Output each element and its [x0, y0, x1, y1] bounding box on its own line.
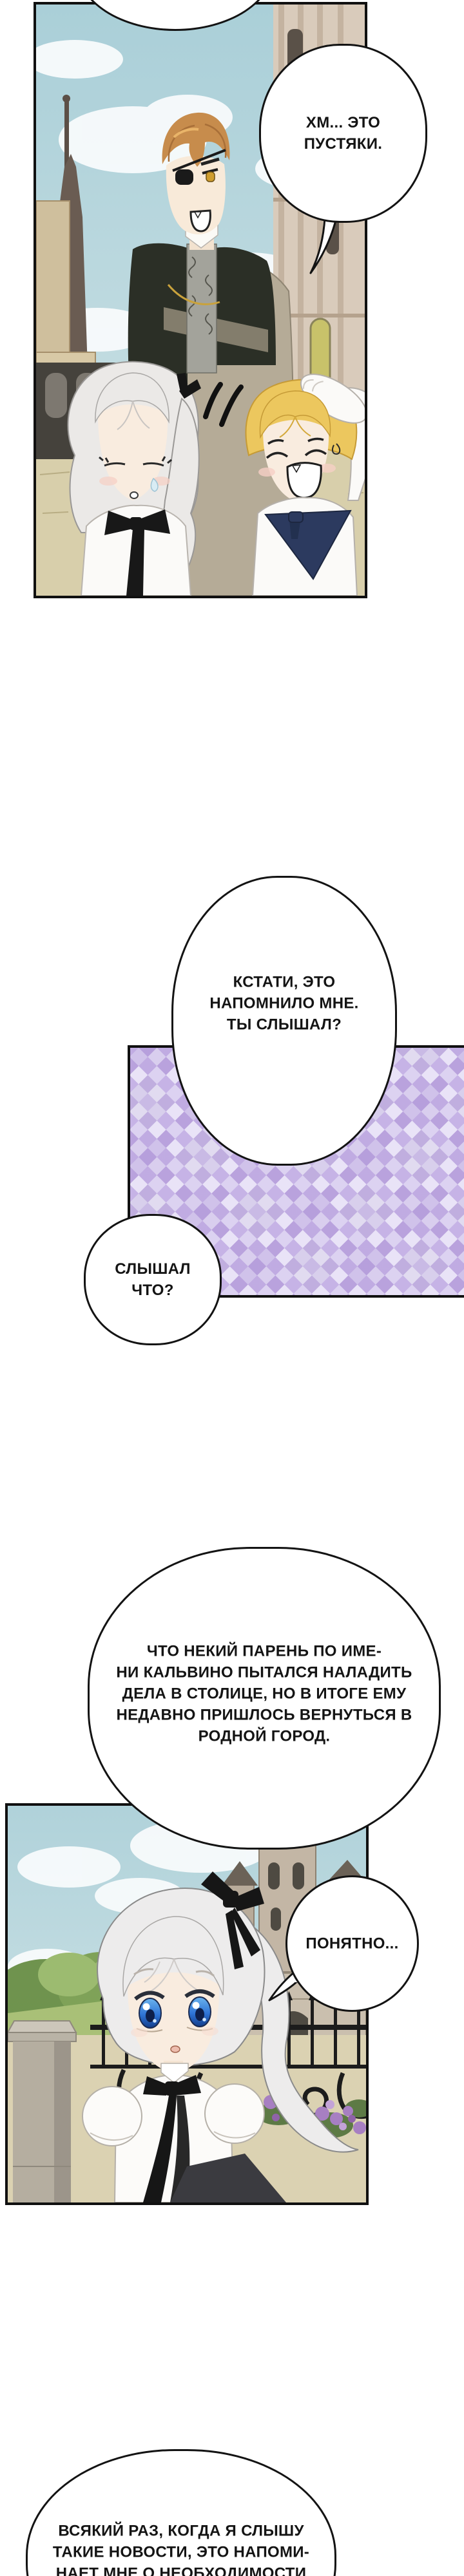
bubble-vsyakiy-line2: ТАКИЕ НОВОСТИ, ЭТО НАПОМИ-	[28, 2542, 334, 2563]
girl2-blush-right	[202, 2027, 218, 2036]
webtoon-page: ХМ... ЭТО ПУСТЯКИ. КСТАТИ, ЭТО НАПОМНИЛО…	[0, 0, 464, 2576]
boy-blush-left	[258, 468, 275, 477]
bubble-hm-line1: ХМ... ЭТО	[261, 112, 425, 133]
bubble-hm-tail	[309, 216, 343, 276]
bubble-kstati-line3: ТЫ СЛЫШАЛ?	[173, 1014, 395, 1036]
bubble-kstati-line1: КСТАТИ, ЭТО	[173, 972, 395, 993]
bubble-ponyatno-line1: ПОНЯТНО...	[287, 1933, 417, 1955]
bubble-vsyakiy-line3: НАЕТ МНЕ О НЕОБХОДИМОСТИ	[28, 2563, 334, 2576]
bubble-chto-line3: ДЕЛА В СТОЛИЦЕ, НО В ИТОГЕ ЕМУ	[90, 1683, 439, 1705]
bubble-vsyakiy-line1: ВСЯКИЙ РАЗ, КОГДА Я СЛЫШУ	[28, 2521, 334, 2542]
speech-bubble-slyshal: СЛЫШАЛ ЧТО?	[84, 1214, 222, 1345]
girl-figure	[68, 362, 201, 596]
girl-mouth	[130, 492, 138, 498]
bubble-hm-line2: ПУСТЯКИ.	[261, 133, 425, 155]
stone-pillar	[8, 2021, 76, 2202]
speech-bubble-hm: ХМ... ЭТО ПУСТЯКИ.	[259, 44, 427, 223]
bubble-kstati-line2: НАПОМНИЛО МНЕ.	[173, 993, 395, 1014]
speech-bubble-ponyatno: ПОНЯТНО...	[285, 1875, 419, 2012]
girl2-blush-left	[131, 2028, 148, 2037]
man-eye	[206, 172, 215, 182]
eyepatch	[175, 169, 193, 185]
girl2-mouth	[171, 2046, 180, 2052]
man-placket	[187, 244, 217, 373]
bubble-chto-line1: ЧТО НЕКИЙ ПАРЕНЬ ПО ИМЕ-	[90, 1641, 439, 1662]
panel-castle-scene	[5, 1803, 369, 2205]
bubble-chto-line5: РОДНОЙ ГОРОД.	[90, 1726, 439, 1747]
speech-bubble-chto: ЧТО НЕКИЙ ПАРЕНЬ ПО ИМЕ- НИ КАЛЬВИНО ПЫТ…	[88, 1547, 441, 1850]
bubble-slyshal-line1: СЛЫШАЛ	[86, 1258, 220, 1280]
bubble-slyshal-line2: ЧТО?	[86, 1280, 220, 1301]
girl-blush-left	[99, 477, 117, 486]
bubble-chto-line4: НЕДАВНО ПРИШЛОСЬ ВЕРНУТЬСЯ В	[90, 1705, 439, 1726]
speech-bubble-vsyakiy: ВСЯКИЙ РАЗ, КОГДА Я СЛЫШУ ТАКИЕ НОВОСТИ,…	[26, 2449, 336, 2576]
speech-bubble-kstati: КСТАТИ, ЭТО НАПОМНИЛО МНЕ. ТЫ СЛЫШАЛ?	[171, 876, 397, 1166]
castle-scene-illustration	[8, 1806, 366, 2202]
bubble-chto-line2: НИ КАЛЬВИНО ПЫТАЛСЯ НАЛАДИТЬ	[90, 1662, 439, 1683]
boy-smile	[287, 463, 321, 498]
